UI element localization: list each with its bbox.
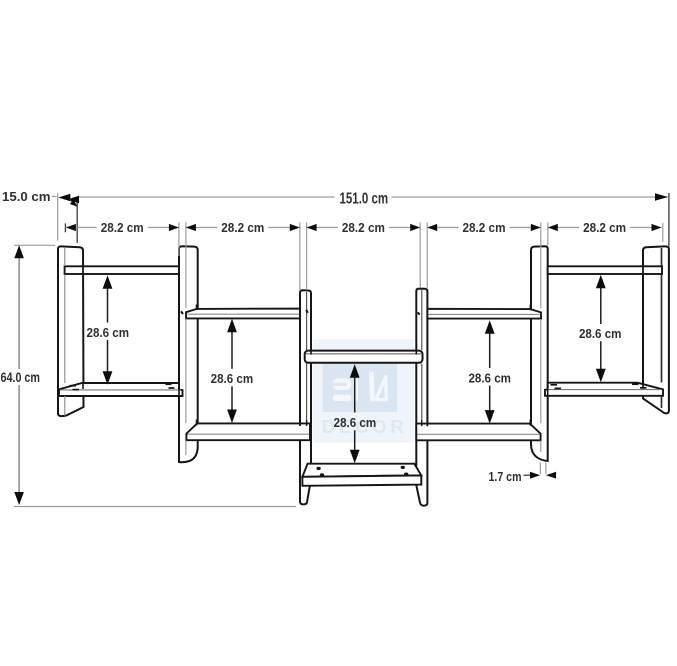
svg-text:28.6 cm: 28.6 cm [211, 371, 254, 386]
svg-text:28.6 cm: 28.6 cm [334, 415, 377, 430]
svg-text:1.7 cm: 1.7 cm [489, 469, 522, 484]
svg-text:28.2 cm: 28.2 cm [342, 220, 385, 235]
svg-text:28.2 cm: 28.2 cm [583, 220, 626, 235]
svg-text:15.0 cm: 15.0 cm [2, 189, 50, 204]
svg-text:28.2 cm: 28.2 cm [101, 220, 144, 235]
svg-text:64.0 cm: 64.0 cm [1, 370, 41, 385]
svg-text:28.6 cm: 28.6 cm [468, 370, 511, 385]
svg-text:28.6 cm: 28.6 cm [87, 325, 130, 340]
svg-text:151.0 cm: 151.0 cm [340, 190, 389, 207]
svg-text:28.6 cm: 28.6 cm [579, 326, 622, 341]
svg-text:28.2 cm: 28.2 cm [221, 220, 264, 235]
svg-text:28.2 cm: 28.2 cm [463, 220, 506, 235]
